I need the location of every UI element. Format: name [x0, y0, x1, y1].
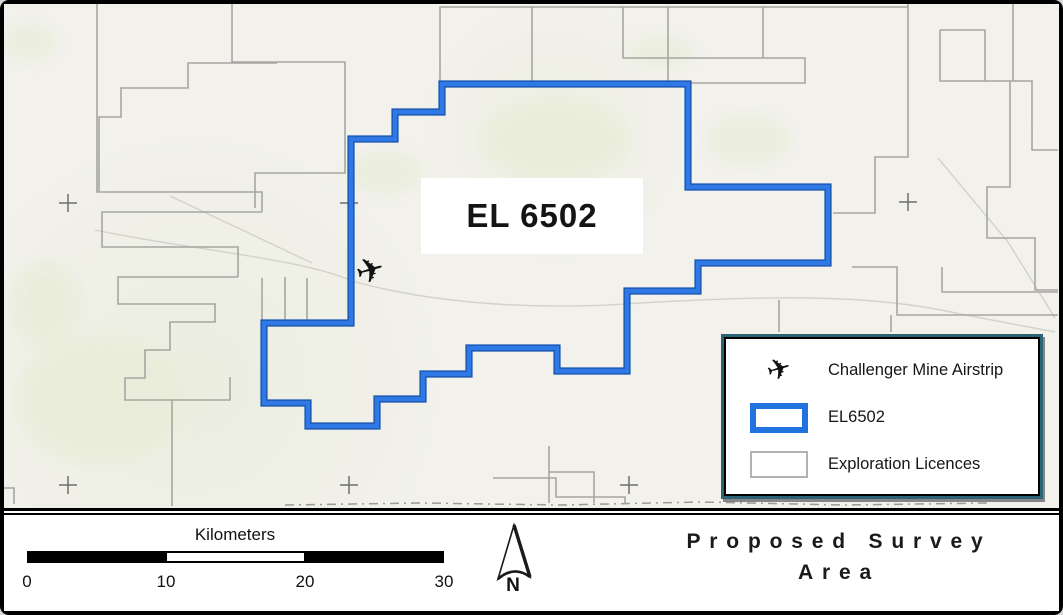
legend-icon-cell: ✈: [742, 356, 816, 385]
licences-swatch-icon: [750, 451, 808, 478]
scale-segment: [304, 553, 442, 561]
map-figure: EL 6502 ✈ ✈ Challenger Mine Airstrip EL6…: [0, 0, 1063, 615]
legend-row-airstrip: ✈ Challenger Mine Airstrip: [742, 347, 1040, 394]
north-label: N: [506, 575, 520, 597]
scale-bar: [27, 551, 444, 563]
scale-segment: [167, 553, 305, 561]
scale-tick-30: 30: [435, 572, 454, 592]
scale-tick-20: 20: [296, 572, 315, 592]
scale-segment: [29, 553, 167, 561]
scale-tick-10: 10: [157, 572, 176, 592]
legend-icon-cell: [742, 403, 816, 433]
scale-units-label: Kilometers: [195, 525, 275, 545]
el6502-map-label: EL 6502: [421, 178, 643, 254]
legend-label-licences: Exploration Licences: [828, 455, 980, 474]
legend-label-el6502: EL6502: [828, 408, 885, 427]
legend-icon-cell: [742, 451, 816, 478]
map-title-line2: Area: [624, 557, 1054, 588]
legend-row-licences: Exploration Licences: [742, 441, 1040, 488]
map-title-line1: Proposed Survey: [624, 526, 1054, 557]
bottom-bar: Kilometers 0 10 20 30 N Proposed Survey …: [4, 515, 1059, 611]
map-bar-divider: [4, 508, 1059, 515]
el6502-swatch-icon: [750, 403, 808, 433]
map-title: Proposed Survey Area: [624, 526, 1054, 588]
legend-box: ✈ Challenger Mine Airstrip EL6502 Explor…: [721, 334, 1043, 499]
legend-row-el6502: EL6502: [742, 394, 1040, 441]
plane-icon: ✈: [763, 353, 794, 388]
scale-tick-0: 0: [22, 572, 31, 592]
map-canvas: EL 6502 ✈ ✈ Challenger Mine Airstrip EL6…: [4, 4, 1059, 508]
legend-label-airstrip: Challenger Mine Airstrip: [828, 361, 1003, 380]
